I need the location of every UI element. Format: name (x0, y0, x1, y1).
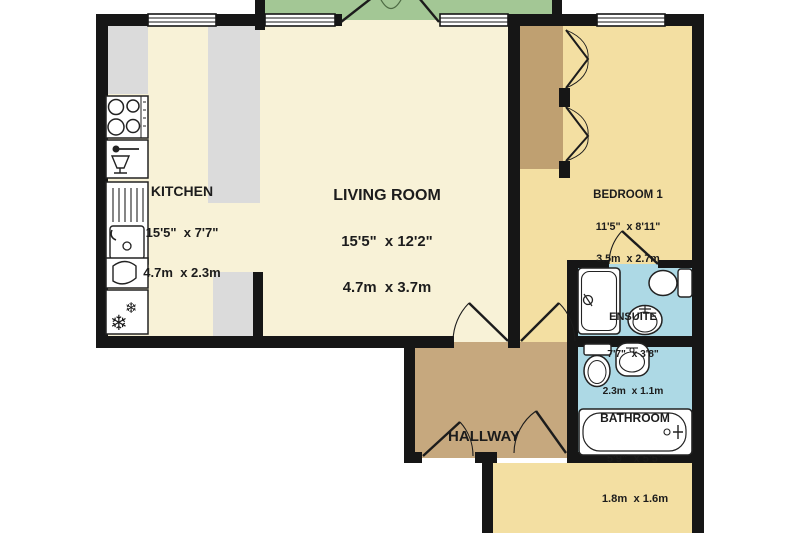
bedroom1-label: BEDROOM 1 11'5" x 8'11" 3.5m x 2.7m (593, 168, 663, 287)
room-dim-metric: 4.7m x 2.3m (143, 266, 220, 280)
room-dim-imperial: 15'5" x 7'7" (143, 226, 220, 240)
living-room-label: LIVING ROOM 15'5" x 12'2" 4.7m x 3.7m (333, 157, 441, 328)
kitchen-window (148, 14, 216, 26)
window-frame (440, 14, 508, 26)
kitchen-worktop (108, 26, 148, 94)
bedroom1-window (597, 14, 665, 26)
room-dim-metric: 1.8m x 1.6m (600, 493, 670, 507)
kitchen-label: KITCHEN 15'5" x 7'7" 4.7m x 2.3m (143, 158, 220, 307)
bedroom2-label: BEDROOM 2 (549, 523, 634, 533)
room-dim-imperial: 15'5" x 12'2" (333, 235, 441, 251)
room-dim-metric: 4.7m x 3.7m (333, 281, 441, 297)
kitchen-appliances: ❄ ❄ (106, 96, 148, 335)
bedroom1-corridor-floor (514, 260, 570, 348)
living-window-left (265, 14, 335, 26)
freezer-icon: ❄ ❄ (106, 290, 148, 335)
room-name: BEDROOM 1 (593, 190, 663, 201)
cistern (678, 269, 692, 297)
unit-body (106, 182, 148, 264)
room-dim-imperial: 5'9" x 5'5" (600, 453, 670, 467)
room-name: KITCHEN (143, 185, 220, 199)
wardrobe-floor (520, 26, 563, 169)
room-dim-metric: 3.5m x 2.7m (593, 254, 663, 265)
floor-plan: ❄ ❄ (0, 0, 800, 533)
stove-body (106, 96, 148, 138)
sink-drainer-icon (106, 182, 148, 264)
room-name: BATHROOM (600, 412, 670, 426)
room-name: HALLWAY (448, 428, 520, 445)
room-dim-imperial: 11'5" x 8'11" (593, 222, 663, 233)
hallway-label: HALLWAY (448, 394, 520, 479)
room-dim-imperial: 7'7" x 3'8" (603, 349, 664, 362)
snowflake-glyph: ❄ (125, 299, 138, 317)
room-name: LIVING ROOM (333, 188, 441, 204)
bathroom-label: BATHROOM 5'9" x 5'5" 1.8m x 1.6m (600, 385, 670, 533)
window-frame (597, 14, 665, 26)
window-frame (148, 14, 216, 26)
living-window-right (440, 14, 508, 26)
tap-icon (106, 140, 148, 178)
stove-icon (106, 96, 148, 138)
appliance-icon (106, 258, 148, 288)
room-name: ENSUITE (603, 311, 664, 324)
window-frame (265, 14, 335, 26)
